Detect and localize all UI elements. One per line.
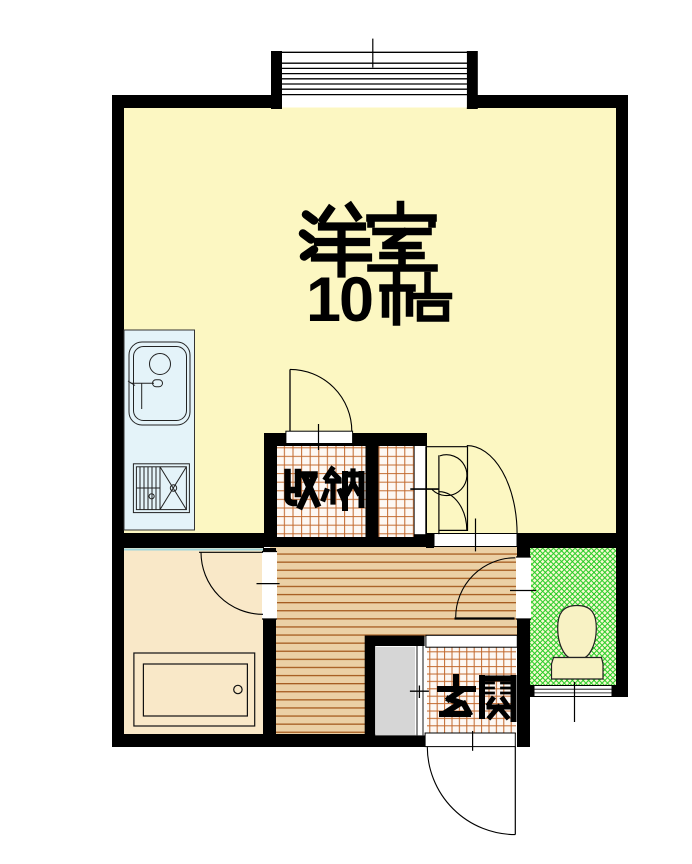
svg-text:10: 10 — [306, 265, 372, 335]
